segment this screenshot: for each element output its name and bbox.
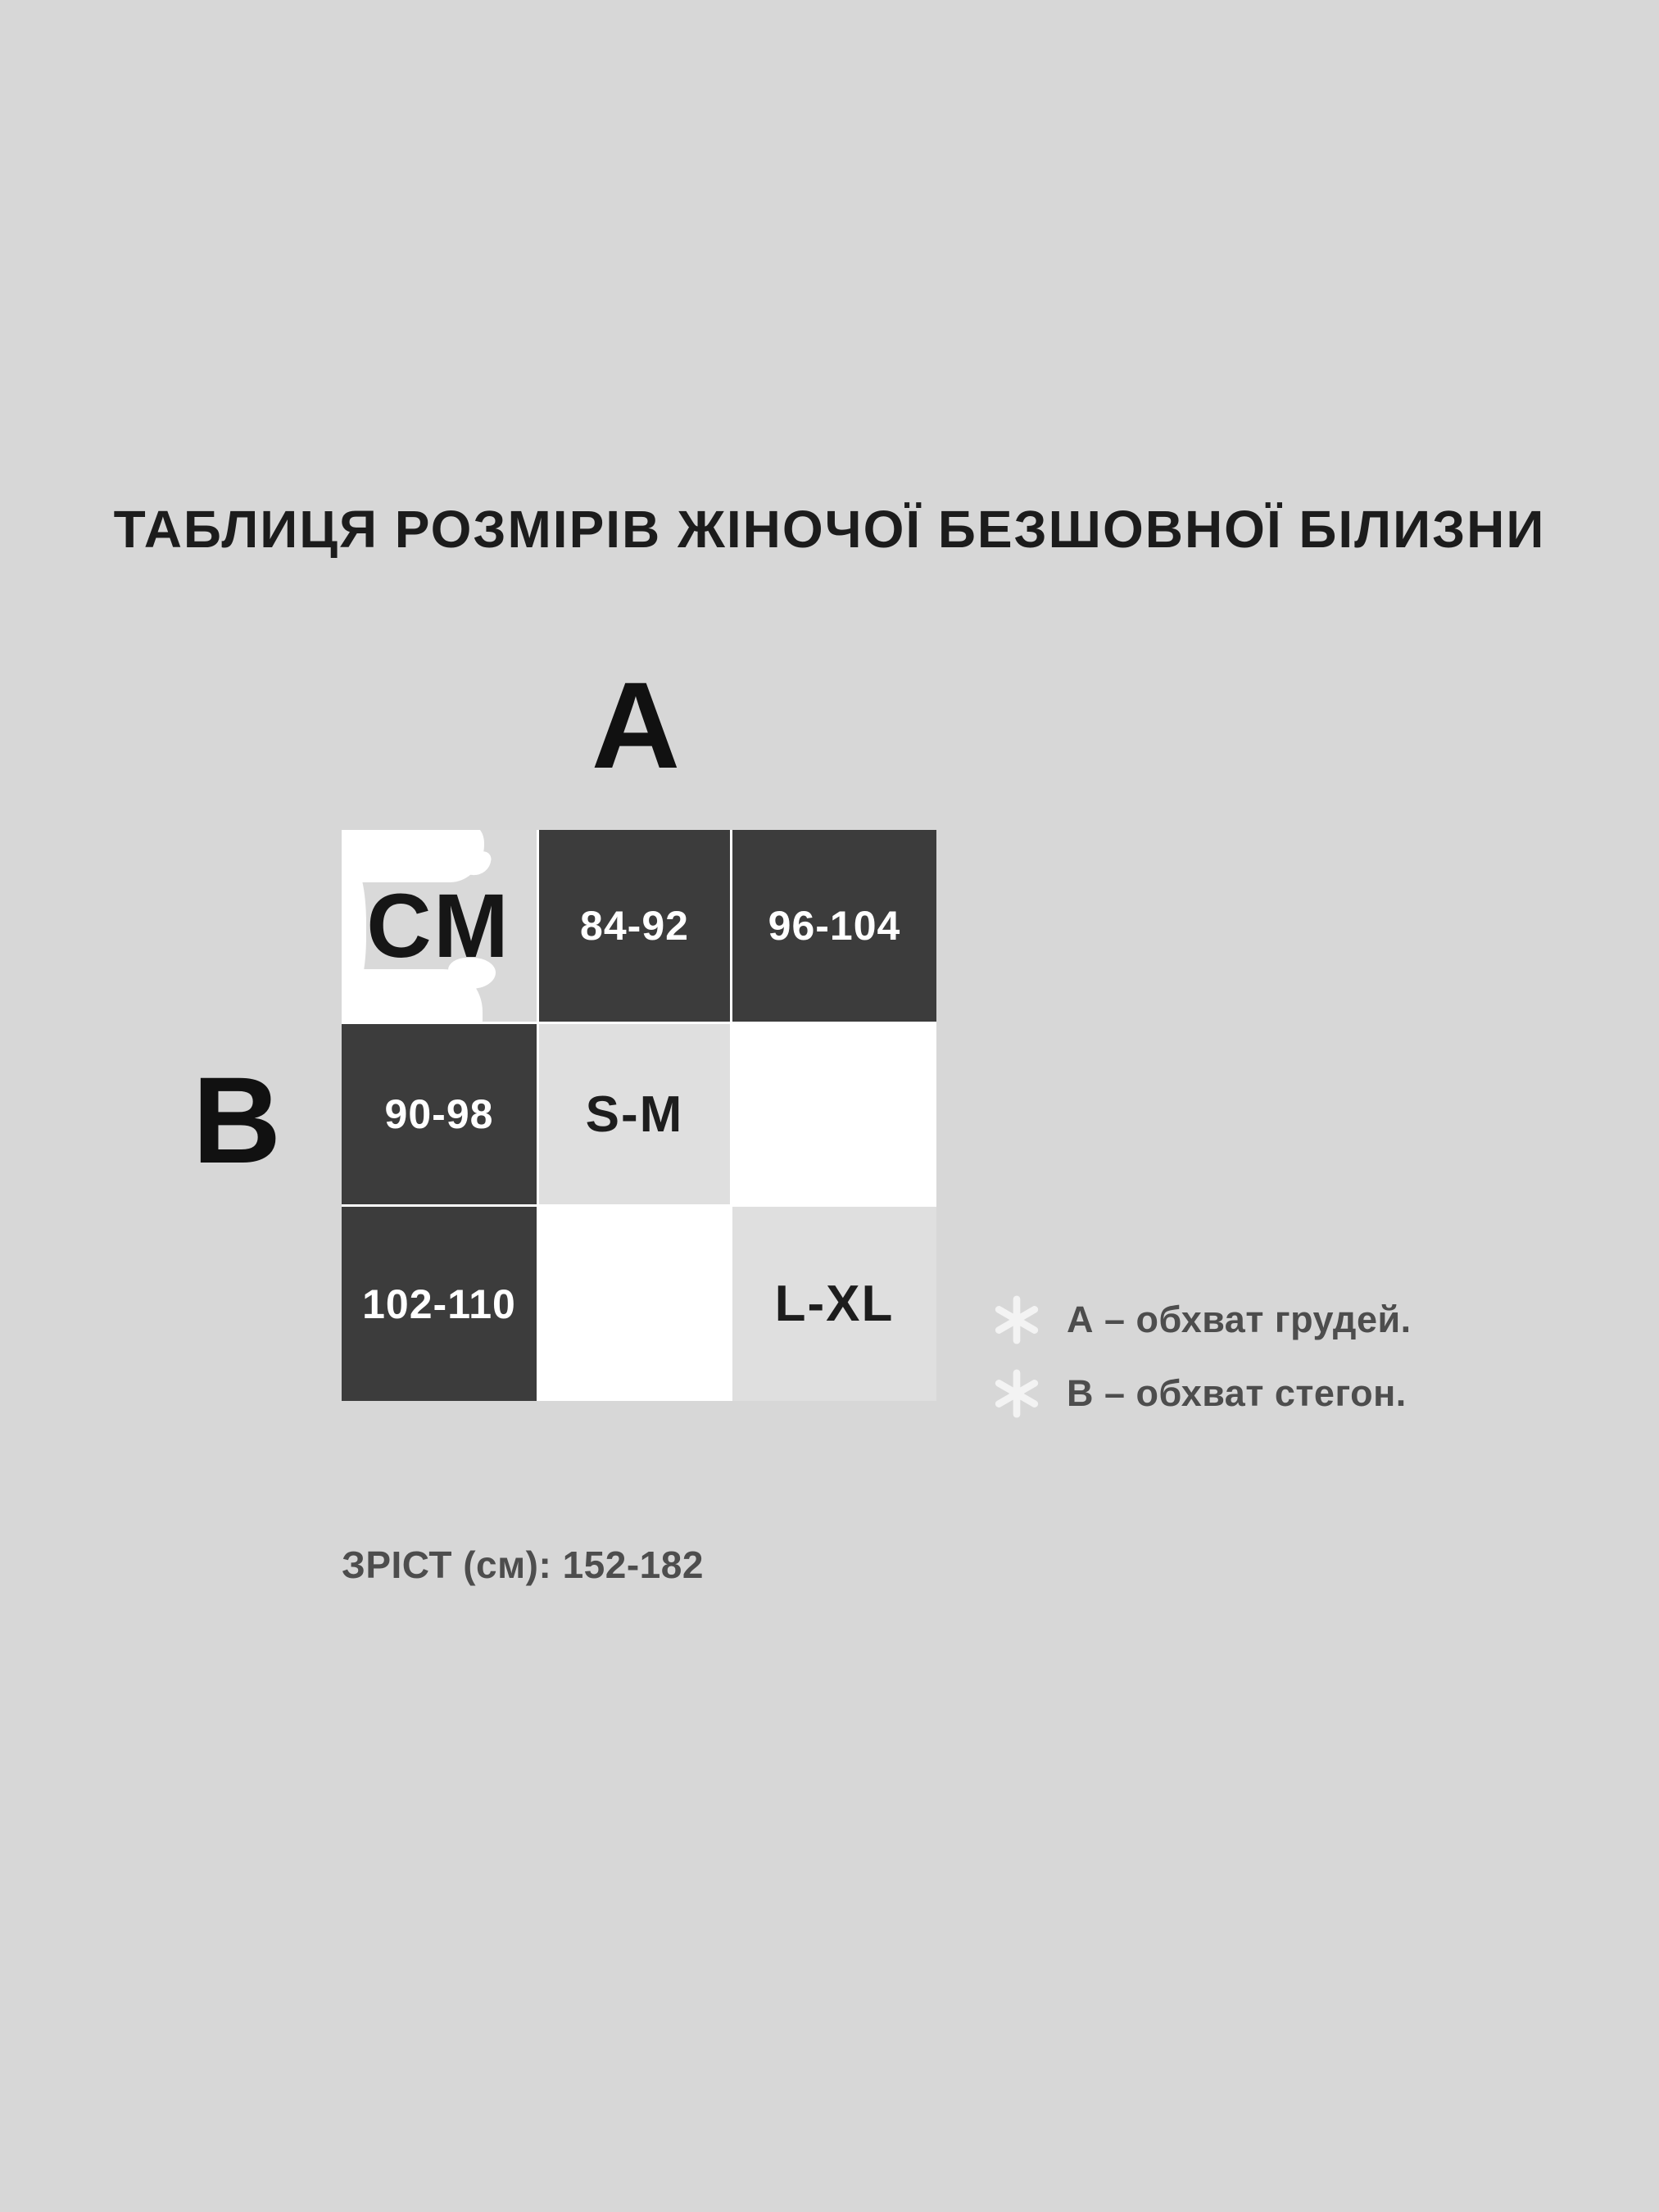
table-cell-size-lxl: L-XL [732, 1207, 936, 1401]
legend-item-hips: В – обхват стегон. [991, 1368, 1412, 1419]
chest-axis-label: А [540, 664, 732, 786]
table-cell-hip-range-2: 102-110 [342, 1207, 537, 1401]
table-cell-unit: СМ [342, 830, 537, 1022]
table-cell-chest-range-1: 84-92 [539, 830, 730, 1022]
legend-item-text: В – обхват стегон. [1067, 1372, 1407, 1415]
size-chart-infographic: ТАБЛИЦЯ РОЗМІРІВ ЖІНОЧОЇ БЕЗШОВНОЇ БІЛИЗ… [0, 0, 1659, 2212]
table-cell-hip-range-1: 90-98 [342, 1024, 537, 1204]
legend: А – обхват грудей. В – обхват стегон. [991, 1294, 1412, 1419]
asterisk-icon [991, 1294, 1042, 1345]
table-cell-size-sm: S-M [539, 1024, 730, 1204]
table-cell-empty-1 [732, 1024, 936, 1204]
unit-label: СМ [366, 874, 512, 978]
table-cell-empty-2 [539, 1207, 730, 1401]
height-note: ЗРІСТ (см): 152-182 [342, 1543, 704, 1587]
legend-item-chest: А – обхват грудей. [991, 1294, 1412, 1345]
table-cell-chest-range-2: 96-104 [732, 830, 936, 1022]
page-title: ТАБЛИЦЯ РОЗМІРІВ ЖІНОЧОЇ БЕЗШОВНОЇ БІЛИЗ… [0, 500, 1659, 560]
legend-item-text: А – обхват грудей. [1067, 1299, 1412, 1341]
size-table: СМ 84-92 96-104 90-98 S-M 102-110 L-XL [342, 830, 936, 1401]
asterisk-icon [991, 1368, 1042, 1419]
hips-axis-label: В [188, 1058, 285, 1181]
